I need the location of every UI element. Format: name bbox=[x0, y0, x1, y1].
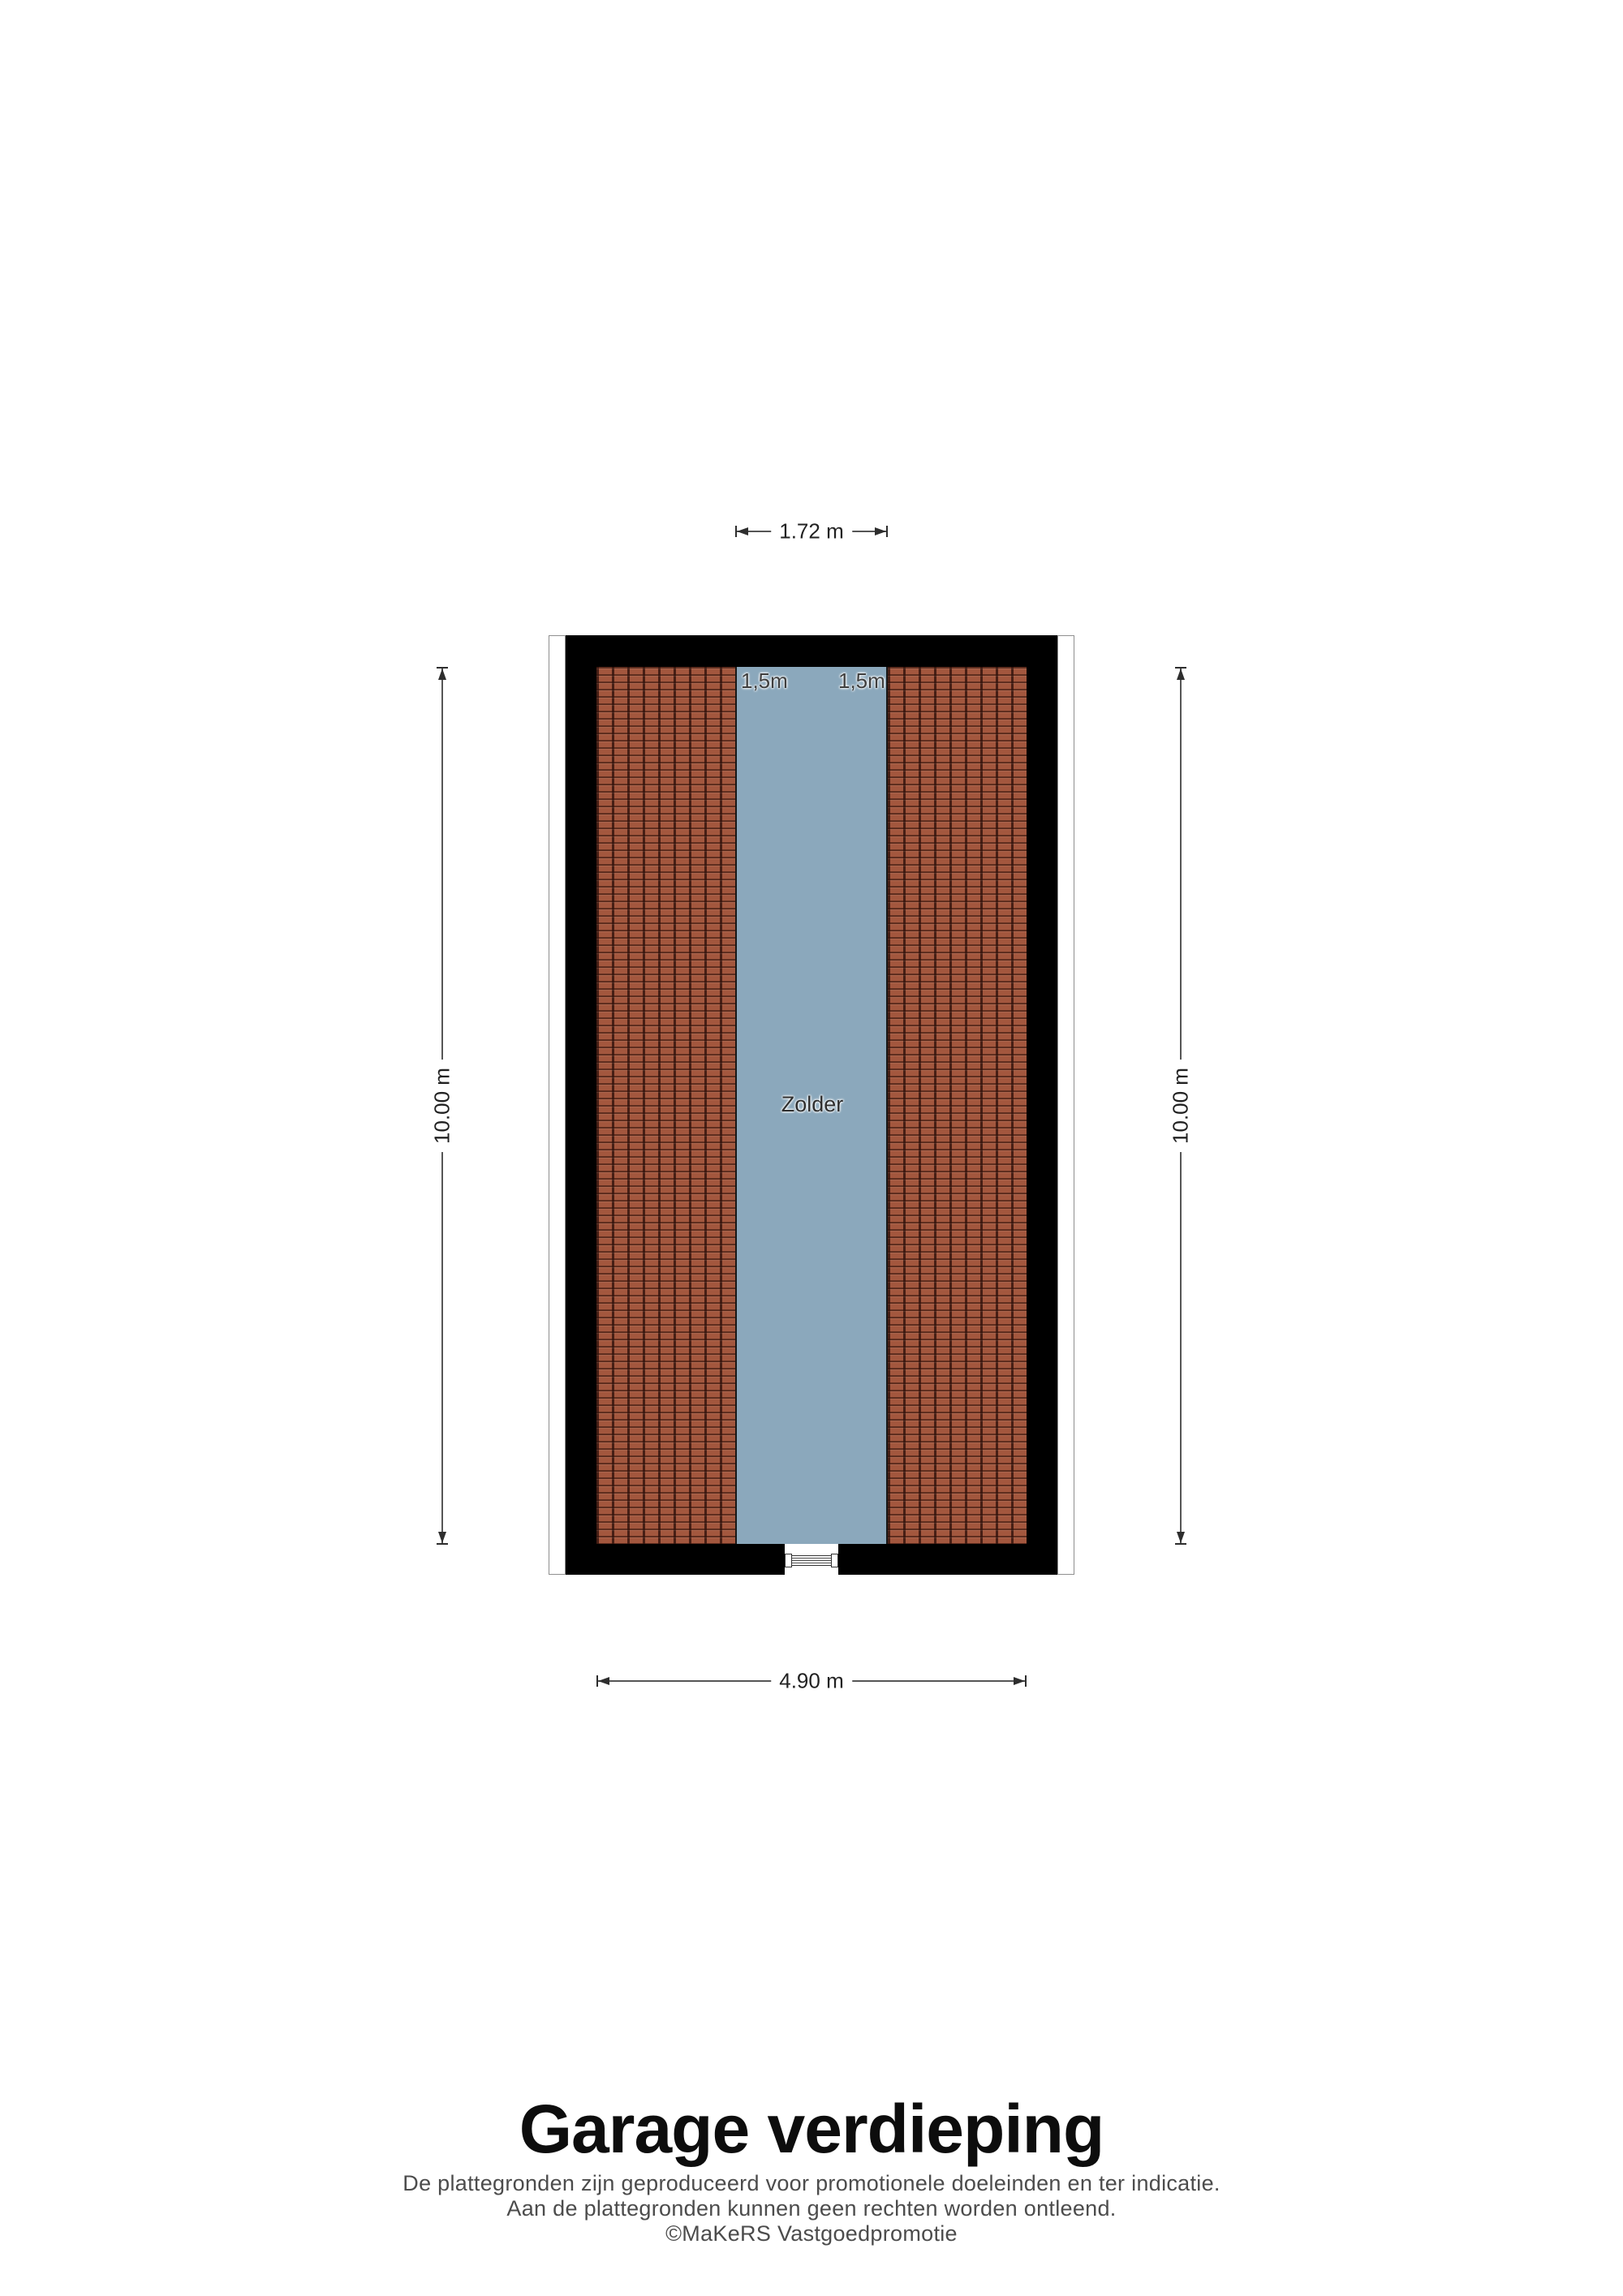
dimension-top: 1.72 m bbox=[736, 520, 887, 543]
window-jamb-right bbox=[831, 1554, 838, 1567]
dimension-right: 10.00 m bbox=[1169, 668, 1192, 1544]
window-opening bbox=[785, 1544, 838, 1575]
wall-edge-cap-right bbox=[1057, 635, 1074, 1575]
dimension-tick bbox=[886, 526, 888, 537]
page-title: Garage verdieping bbox=[0, 2090, 1623, 2169]
dimension-tick bbox=[1175, 1543, 1186, 1545]
copyright-line: ©MaKeRS Vastgoedpromotie bbox=[0, 2221, 1623, 2247]
disclaimer-block: De plattegronden zijn geproduceerd voor … bbox=[0, 2171, 1623, 2247]
disclaimer-line-1: De plattegronden zijn geproduceerd voor … bbox=[0, 2171, 1623, 2196]
dimension-label-bottom: 4.90 m bbox=[771, 1669, 852, 1694]
arrow-up-icon bbox=[1177, 669, 1185, 680]
window-symbol bbox=[791, 1555, 832, 1566]
dimension-label-top: 1.72 m bbox=[771, 519, 852, 544]
dimension-label-right: 10.00 m bbox=[1169, 1060, 1194, 1152]
dimension-tick bbox=[1025, 1675, 1027, 1687]
dimension-left: 10.00 m bbox=[431, 668, 454, 1544]
dimension-bottom: 4.90 m bbox=[597, 1670, 1026, 1692]
floorplan-page: 1.72 m 1,5m 1,5m Zolder 10.00 m 10.00 m bbox=[0, 0, 1623, 2296]
arrow-right-icon bbox=[875, 527, 886, 535]
dimension-label-left: 10.00 m bbox=[430, 1060, 455, 1152]
roof-tiles-left bbox=[596, 667, 735, 1544]
arrow-down-icon bbox=[438, 1532, 446, 1543]
disclaimer-line-2: Aan de plattegronden kunnen geen rechten… bbox=[0, 2196, 1623, 2221]
room-label: Zolder bbox=[735, 1092, 889, 1117]
arrow-right-icon bbox=[1014, 1677, 1025, 1685]
arrow-down-icon bbox=[1177, 1532, 1185, 1543]
arrow-up-icon bbox=[438, 669, 446, 680]
wall-edge-cap-left bbox=[549, 635, 566, 1575]
dimension-tick bbox=[437, 1543, 448, 1545]
roof-tiles-right bbox=[888, 667, 1027, 1544]
arrow-left-icon bbox=[598, 1677, 609, 1685]
headroom-label-left: 1,5m bbox=[741, 669, 788, 694]
arrow-left-icon bbox=[737, 527, 748, 535]
headroom-label-right: 1,5m bbox=[838, 669, 885, 694]
